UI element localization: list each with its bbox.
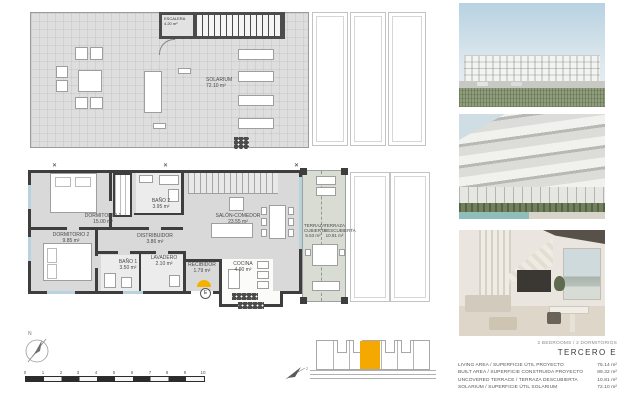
car-icon [511, 82, 522, 86]
area-label: BUILT AREA / SUPERFICIE CONSTRUIDA PROYE… [458, 370, 583, 375]
area-label: UNCOVERED TERRACE / TERRAZA DESCUBIERTA [458, 378, 578, 383]
wall [134, 213, 184, 215]
wall [109, 173, 112, 201]
photo-building-front [459, 3, 605, 107]
pouf [489, 317, 517, 330]
entry-step-icon [238, 302, 264, 309]
neighbour-unit-outline [350, 172, 390, 302]
window-icon [47, 291, 75, 294]
scale-tick: 9 [184, 370, 187, 375]
room-label-recibidor: RECIBIDOR 1.79 m² [188, 263, 216, 275]
area-value: 75.14 m² [597, 363, 617, 368]
bed-icon [50, 173, 97, 213]
shower-icon [104, 273, 116, 288]
room-name: TERRAZA CUBIERTA [304, 223, 322, 233]
interior-stairs [188, 173, 278, 194]
keyplan-compass-icon [284, 364, 308, 382]
table-icon [312, 244, 338, 266]
dining-table-icon [269, 205, 286, 239]
sun-lounger-icon [312, 281, 340, 291]
solarium-stairs: ESCALERA 4.20 m² [159, 12, 285, 39]
bed-icon [43, 243, 92, 281]
room-label-bano2: BAÑO 2 3.95 m² [152, 199, 170, 211]
room-area: 10.81 m² [324, 233, 345, 238]
pillow-icon [47, 248, 57, 263]
survey-marker-icon: ✕ [52, 162, 57, 169]
column-icon [341, 297, 348, 304]
area-value: 72.10 m² [597, 385, 617, 390]
neighbour-unit-outline [350, 12, 386, 146]
sun-lounger-icon [238, 49, 274, 60]
sun-lounger-icon [238, 71, 274, 82]
chair-icon [56, 66, 68, 78]
room-area: 3.50 m² [119, 266, 137, 272]
area-row: SOLARIUM / SUPERFICIE ÚTIL SOLARIUM 72.1… [458, 385, 617, 390]
window-icon [28, 237, 31, 261]
main-floor-plan: DORMITORIO 1 15.00 m² DORMITORIO 2 9.85 … [28, 170, 302, 294]
sun-lounger-icon [316, 176, 336, 185]
room-area: 23.55 m² [216, 220, 261, 226]
room-area: 9.85 m² [53, 239, 90, 245]
escalera-label: ESCALERA 4.20 m² [162, 15, 193, 27]
bench-icon [178, 68, 191, 74]
appliance-icon [257, 281, 269, 289]
unit-title: TERCERO E [440, 348, 617, 357]
wall [181, 173, 184, 215]
room-label-lavadero: LAVADERO 2.10 m² [151, 256, 178, 268]
area-label: LIVING AREA / SUPERFICIE ÚTIL PROYECTO [458, 363, 564, 368]
sun-lounger-icon [316, 187, 336, 196]
pillow-icon [75, 177, 91, 187]
room-label-bano1: BAÑO 1 3.50 m² [119, 260, 137, 272]
scale-tick: 0 [24, 370, 27, 375]
scale-tick: 4 [95, 370, 98, 375]
appliance-icon [257, 271, 269, 279]
column-icon [300, 297, 307, 304]
chair-icon [90, 47, 103, 60]
room-label-salon: SALÓN-COMEDOR 23.55 m² [216, 214, 261, 226]
room-area: 5.53 m² [304, 233, 322, 238]
area-label: SOLARIUM / SUPERFICIE ÚTIL SOLARIUM [458, 385, 557, 390]
field [459, 88, 605, 107]
survey-marker-icon: ✕ [163, 162, 168, 169]
chair-icon [261, 229, 267, 237]
stair-landing: ESCALERA 4.20 m² [162, 15, 193, 36]
chair-icon [261, 218, 267, 226]
key-plan [310, 337, 436, 383]
sink-icon [139, 175, 153, 183]
column-icon [300, 168, 307, 175]
chair-icon [75, 47, 88, 60]
scale-tick: 8 [166, 370, 169, 375]
keyplan-compass-label: z [306, 366, 308, 371]
shower-icon [159, 175, 179, 185]
neighbour-unit-outline [388, 12, 426, 146]
sofa [465, 295, 511, 312]
keyplan-notch [337, 340, 347, 353]
keyplan-building-outline [316, 340, 430, 370]
keyplan-notch [401, 340, 411, 353]
sun-lounger-icon [238, 95, 274, 106]
car-icon [477, 82, 488, 86]
vent-block-icon [234, 137, 249, 149]
photo-building-terraces [459, 114, 605, 219]
room-area: 1.79 m² [188, 269, 216, 275]
wall [31, 227, 67, 230]
keyplan-notch [385, 340, 395, 353]
dining-table-icon [144, 71, 162, 113]
room-area: 15.00 m² [85, 220, 122, 226]
armchair-icon [229, 197, 244, 211]
deck [529, 212, 605, 219]
room-label-cocina: COCINA 4.90 m² [233, 262, 252, 274]
terrace: TERRAZA CUBIERTA 5.53 m² TERRAZA DESCUBI… [302, 170, 346, 302]
escalera-area: 4.20 m² [164, 22, 193, 27]
stair-treads [196, 15, 281, 36]
room-area: 3.86 m² [137, 240, 173, 246]
room-label-distribuidor: DISTRIBUIDOR 3.86 m² [137, 234, 173, 246]
room-label-dormitorio1: DORMITORIO 1 15.00 m² [85, 214, 122, 226]
chair-icon [288, 229, 294, 237]
scale-bar [25, 376, 205, 382]
table-icon [78, 70, 102, 92]
area-table: LIVING AREA / SUPERFICIE ÚTIL PROYECTO 7… [458, 360, 617, 390]
survey-marker-icon: ✕ [294, 162, 299, 169]
room-label-terraza-cubierta: TERRAZA CUBIERTA 5.53 m² [304, 223, 322, 239]
chair-icon [288, 207, 294, 215]
chair-icon [90, 97, 103, 109]
area-value: 10.81 m² [597, 378, 617, 383]
table-leg [570, 314, 575, 332]
pillow-icon [55, 177, 71, 187]
room-label-dormitorio2: DORMITORIO 2 9.85 m² [53, 233, 90, 245]
window-icon [28, 185, 31, 209]
column-icon [341, 168, 348, 175]
bedrooms-line: 2 BEDROOMS / 2 DORMITORIOS [440, 341, 617, 346]
window-icon [123, 291, 143, 294]
solarium-label: SOLARIUM 72.10 m² [206, 77, 232, 89]
pool [459, 212, 529, 219]
scale-tick: 5 [113, 370, 116, 375]
scale-tick: 7 [149, 370, 152, 375]
wall [130, 251, 156, 254]
window-view [563, 248, 601, 300]
room-label-terraza-descubierta: TERRAZA DESCUBIERTA 10.81 m² [324, 223, 345, 239]
chair-icon [75, 97, 88, 109]
glass-door-icon [299, 177, 302, 249]
room-area: 3.95 m² [152, 205, 170, 211]
wardrobe-icon [113, 173, 132, 217]
chair-icon [305, 249, 311, 256]
door-arc-icon [159, 39, 175, 55]
chair-icon [288, 218, 294, 226]
solarium-area: 72.10 m² [206, 83, 232, 89]
wall [95, 268, 98, 291]
solarium-floor-plan: ESCALERA 4.20 m² SOLARIUM 72.10 m² [30, 12, 309, 148]
scale-tick: 3 [77, 370, 80, 375]
wall [183, 251, 186, 291]
north-compass-icon [24, 335, 52, 365]
tv-unit [517, 270, 551, 292]
highlighted-unit [360, 341, 380, 369]
room-area: 4.90 m² [233, 268, 252, 274]
wall [79, 227, 149, 230]
area-value: 89.32 m² [597, 370, 617, 375]
scale-tick: 10 [200, 370, 205, 375]
scale-tick: 1 [42, 370, 45, 375]
chair-icon [56, 80, 68, 92]
area-row: UNCOVERED TERRACE / TERRAZA DESCUBIERTA … [458, 378, 617, 383]
neighbour-unit-outline [390, 172, 430, 302]
entry-step-icon [232, 293, 258, 300]
wall [161, 227, 183, 230]
room-area: 2.10 m² [151, 262, 178, 268]
scale-tick: 6 [131, 370, 134, 375]
neighbour-unit-outline [312, 12, 348, 146]
neighbour-solariums [310, 12, 432, 146]
toilet-icon [121, 277, 132, 288]
bench-icon [153, 123, 166, 129]
wall [98, 251, 118, 254]
area-row: LIVING AREA / SUPERFICIE ÚTIL PROYECTO 7… [458, 363, 617, 368]
sun-lounger-icon [238, 118, 274, 129]
appliance-icon [257, 261, 269, 269]
pillow-icon [47, 264, 57, 279]
chair-icon [339, 249, 345, 256]
photo-living-room [459, 230, 605, 336]
area-row: BUILT AREA / SUPERFICIE CONSTRUIDA PROYE… [458, 370, 617, 375]
chair-icon [261, 207, 267, 215]
brochure-page: ESCALERA 4.20 m² SOLARIUM 72.10 m² [0, 0, 620, 406]
room-name: TERRAZA DESCUBIERTA [324, 223, 345, 233]
entrance-badge: E [200, 288, 211, 299]
building-facade [464, 55, 600, 82]
washer-icon [169, 275, 180, 287]
entrance-sun-icon [197, 280, 211, 287]
plant [554, 276, 565, 291]
dining-chair [547, 312, 561, 324]
scale-tick: 2 [60, 370, 63, 375]
